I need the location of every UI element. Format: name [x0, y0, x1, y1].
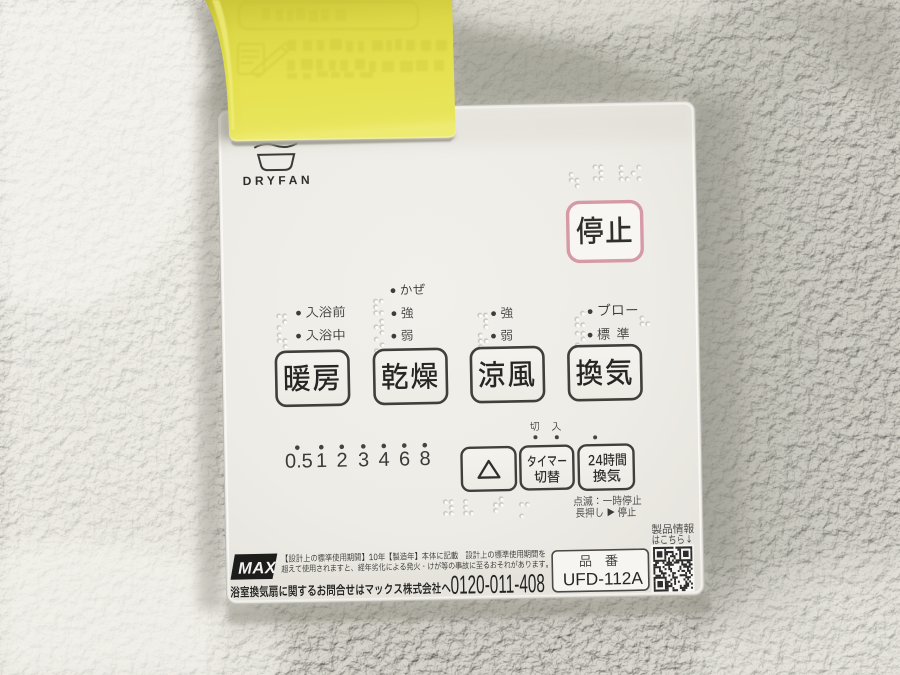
svg-text:MAX: MAX — [238, 559, 277, 578]
svg-text:2: 2 — [336, 450, 348, 472]
svg-text:DRYFAN: DRYFAN — [243, 173, 314, 188]
svg-text:8: 8 — [419, 448, 431, 470]
svg-text:UFD-112A: UFD-112A — [563, 568, 644, 590]
svg-text:4: 4 — [378, 449, 390, 471]
svg-text:0120-011-408: 0120-011-408 — [450, 569, 545, 600]
svg-text:1: 1 — [316, 450, 328, 472]
svg-text:6: 6 — [399, 448, 411, 470]
svg-text:0.5: 0.5 — [285, 450, 313, 473]
svg-text:3: 3 — [358, 449, 370, 471]
